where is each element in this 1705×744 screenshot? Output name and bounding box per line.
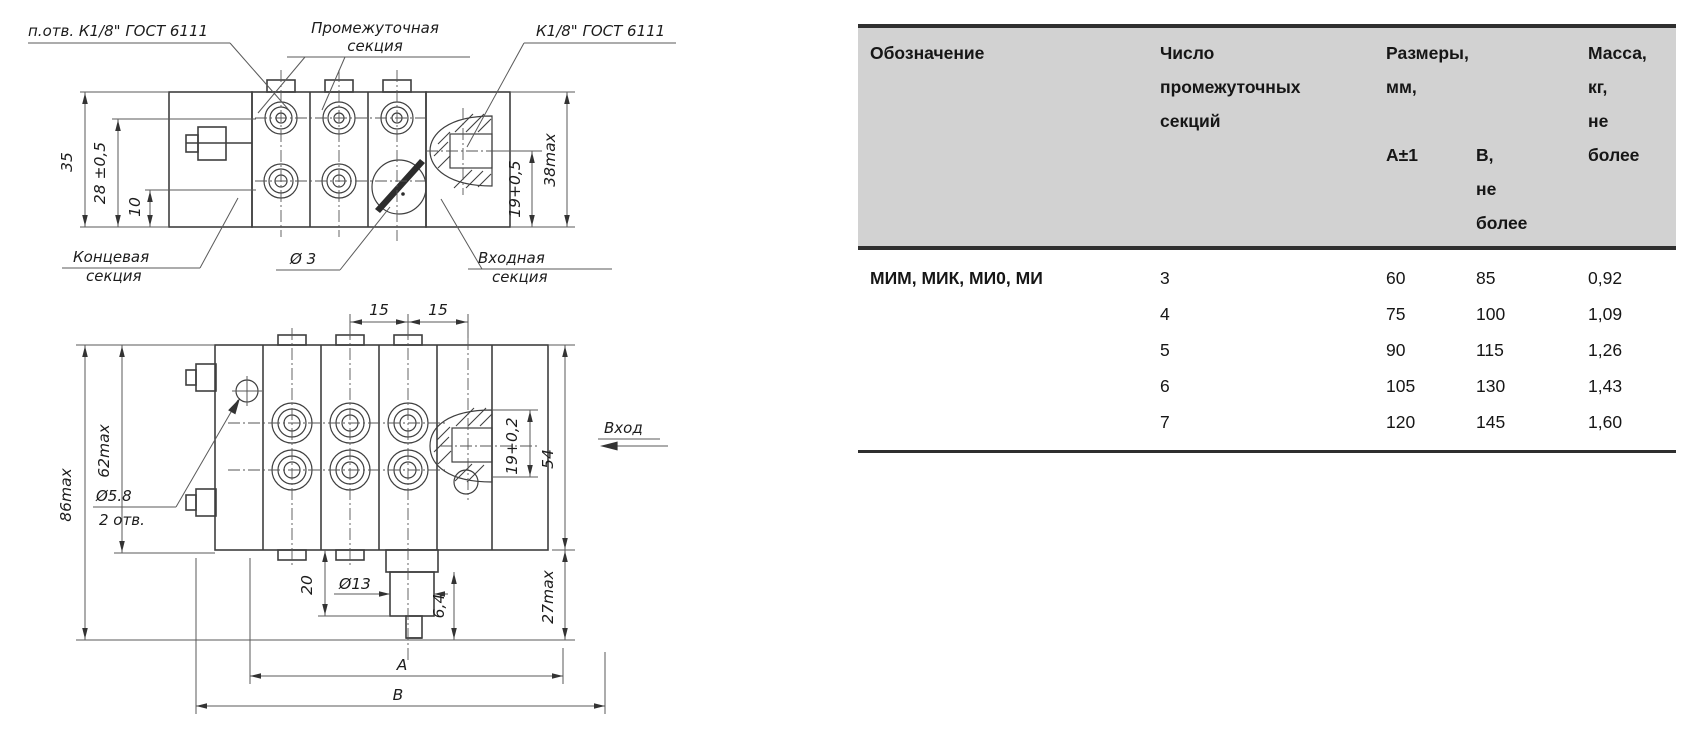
cell-dim-b: 115 [1476, 340, 1504, 361]
cell-dim-b: 85 [1476, 268, 1495, 289]
cell-mass: 1,60 [1588, 412, 1622, 433]
cell-dim-b: 130 [1476, 376, 1505, 397]
col-header-dim-b: В, не более [1476, 138, 1527, 240]
top-view: п.отв. К1/8" ГОСТ 6111 Промежуточная сек… [28, 19, 676, 286]
orifice-dial [372, 159, 426, 214]
cell-dim-a: 60 [1386, 268, 1405, 289]
dim-20-label: 20 [298, 575, 316, 595]
table-row: 6 105 130 1,43 [858, 376, 1676, 400]
top-view-dim-lines [80, 92, 575, 227]
top-view-centerlines [255, 70, 508, 241]
table-row: 3 60 85 0,92 [858, 268, 1676, 292]
col-header-designation: Обозначение [870, 36, 984, 70]
dim-27max-label: 27max [539, 569, 557, 623]
dim-d13-label: Ø13 [338, 575, 371, 593]
cell-sections: 3 [1160, 268, 1170, 289]
page: п.отв. К1/8" ГОСТ 6111 Промежуточная сек… [0, 0, 1705, 744]
dim-28-label: 28 ±0,5 [91, 142, 109, 204]
dim-a-label: A [396, 656, 408, 674]
label-inlet-section-1: Входная [478, 249, 545, 267]
cell-sections: 5 [1160, 340, 1170, 361]
cell-sections: 6 [1160, 376, 1170, 397]
cell-sections: 7 [1160, 412, 1170, 433]
cell-dim-a: 75 [1386, 304, 1405, 325]
front-view-inlet-boss [430, 408, 492, 494]
col-header-mass: Масса, кг, не более [1588, 36, 1676, 172]
top-view-ports [264, 102, 413, 198]
dim-15-right-label: 15 [428, 301, 448, 319]
label-hole-note: п.отв. К1/8" ГОСТ 6111 [28, 22, 208, 40]
front-view: 15 15 86max 62max Ø5.8 2 отв. 19+0,2 54 … [57, 301, 668, 714]
cell-dim-a: 90 [1386, 340, 1405, 361]
table-row: 7 120 145 1,60 [858, 412, 1676, 436]
label-holes-d58: Ø5.8 [95, 487, 132, 505]
dim-54-label: 54 [539, 449, 557, 469]
spec-table-body: МИМ, МИК, МИ0, МИ 3 60 85 0,92 4 75 100 … [858, 250, 1676, 453]
cell-dim-a: 120 [1386, 412, 1415, 433]
label-end-section-2: секция [86, 267, 142, 285]
top-view-dim-arrows [82, 93, 570, 226]
col-header-sizes: Размеры, мм, [1386, 36, 1506, 104]
dim-62max-label: 62max [95, 423, 113, 477]
dim-35-label: 35 [58, 152, 76, 172]
label-inlet-arrow: Вход [604, 419, 643, 437]
dim-64-label: 6,4 [430, 594, 448, 619]
dim-10-label: 10 [126, 197, 144, 217]
dim-15-left-label: 15 [369, 301, 389, 319]
cell-sections: 4 [1160, 304, 1170, 325]
table-row: 4 75 100 1,09 [858, 304, 1676, 328]
cell-dim-a: 105 [1386, 376, 1415, 397]
front-view-dim-lines [76, 314, 668, 714]
spec-table: Обозначение Число промежуточных секций Р… [858, 24, 1676, 453]
label-thread-note: К1/8" ГОСТ 6111 [536, 22, 665, 40]
cell-mass: 1,43 [1588, 376, 1622, 397]
col-header-sections: Число промежуточных секций [1160, 36, 1385, 138]
dim-b-label: B [393, 686, 404, 704]
spec-table-header: Обозначение Число промежуточных секций Р… [858, 24, 1676, 250]
dim-38max-label: 38max [541, 132, 559, 186]
table-row: 5 90 115 1,26 [858, 340, 1676, 364]
label-intermediate-section-2: секция [347, 37, 403, 55]
cell-dim-b: 145 [1476, 412, 1505, 433]
cell-dim-b: 100 [1476, 304, 1505, 325]
label-orifice-d3: Ø 3 [289, 250, 316, 268]
label-end-section-1: Концевая [73, 248, 149, 266]
cell-mass: 0,92 [1588, 268, 1622, 289]
dim-19-02-label: 19+0,2 [503, 417, 521, 474]
mounting-hole [232, 376, 262, 406]
dim-19-05-label: 19+0,5 [506, 160, 524, 217]
label-inlet-section-2: секция [492, 268, 548, 286]
dim-86max-label: 86max [57, 467, 75, 521]
label-holes-count: 2 отв. [99, 511, 145, 529]
col-header-dim-a: А±1 [1386, 138, 1418, 172]
top-view-leaders [28, 43, 676, 270]
technical-drawing: п.отв. К1/8" ГОСТ 6111 Промежуточная сек… [0, 0, 860, 744]
cell-mass: 1,09 [1588, 304, 1622, 325]
label-intermediate-section-1: Промежуточная [311, 19, 439, 37]
front-view-centerlines [228, 318, 540, 660]
cell-mass: 1,26 [1588, 340, 1622, 361]
